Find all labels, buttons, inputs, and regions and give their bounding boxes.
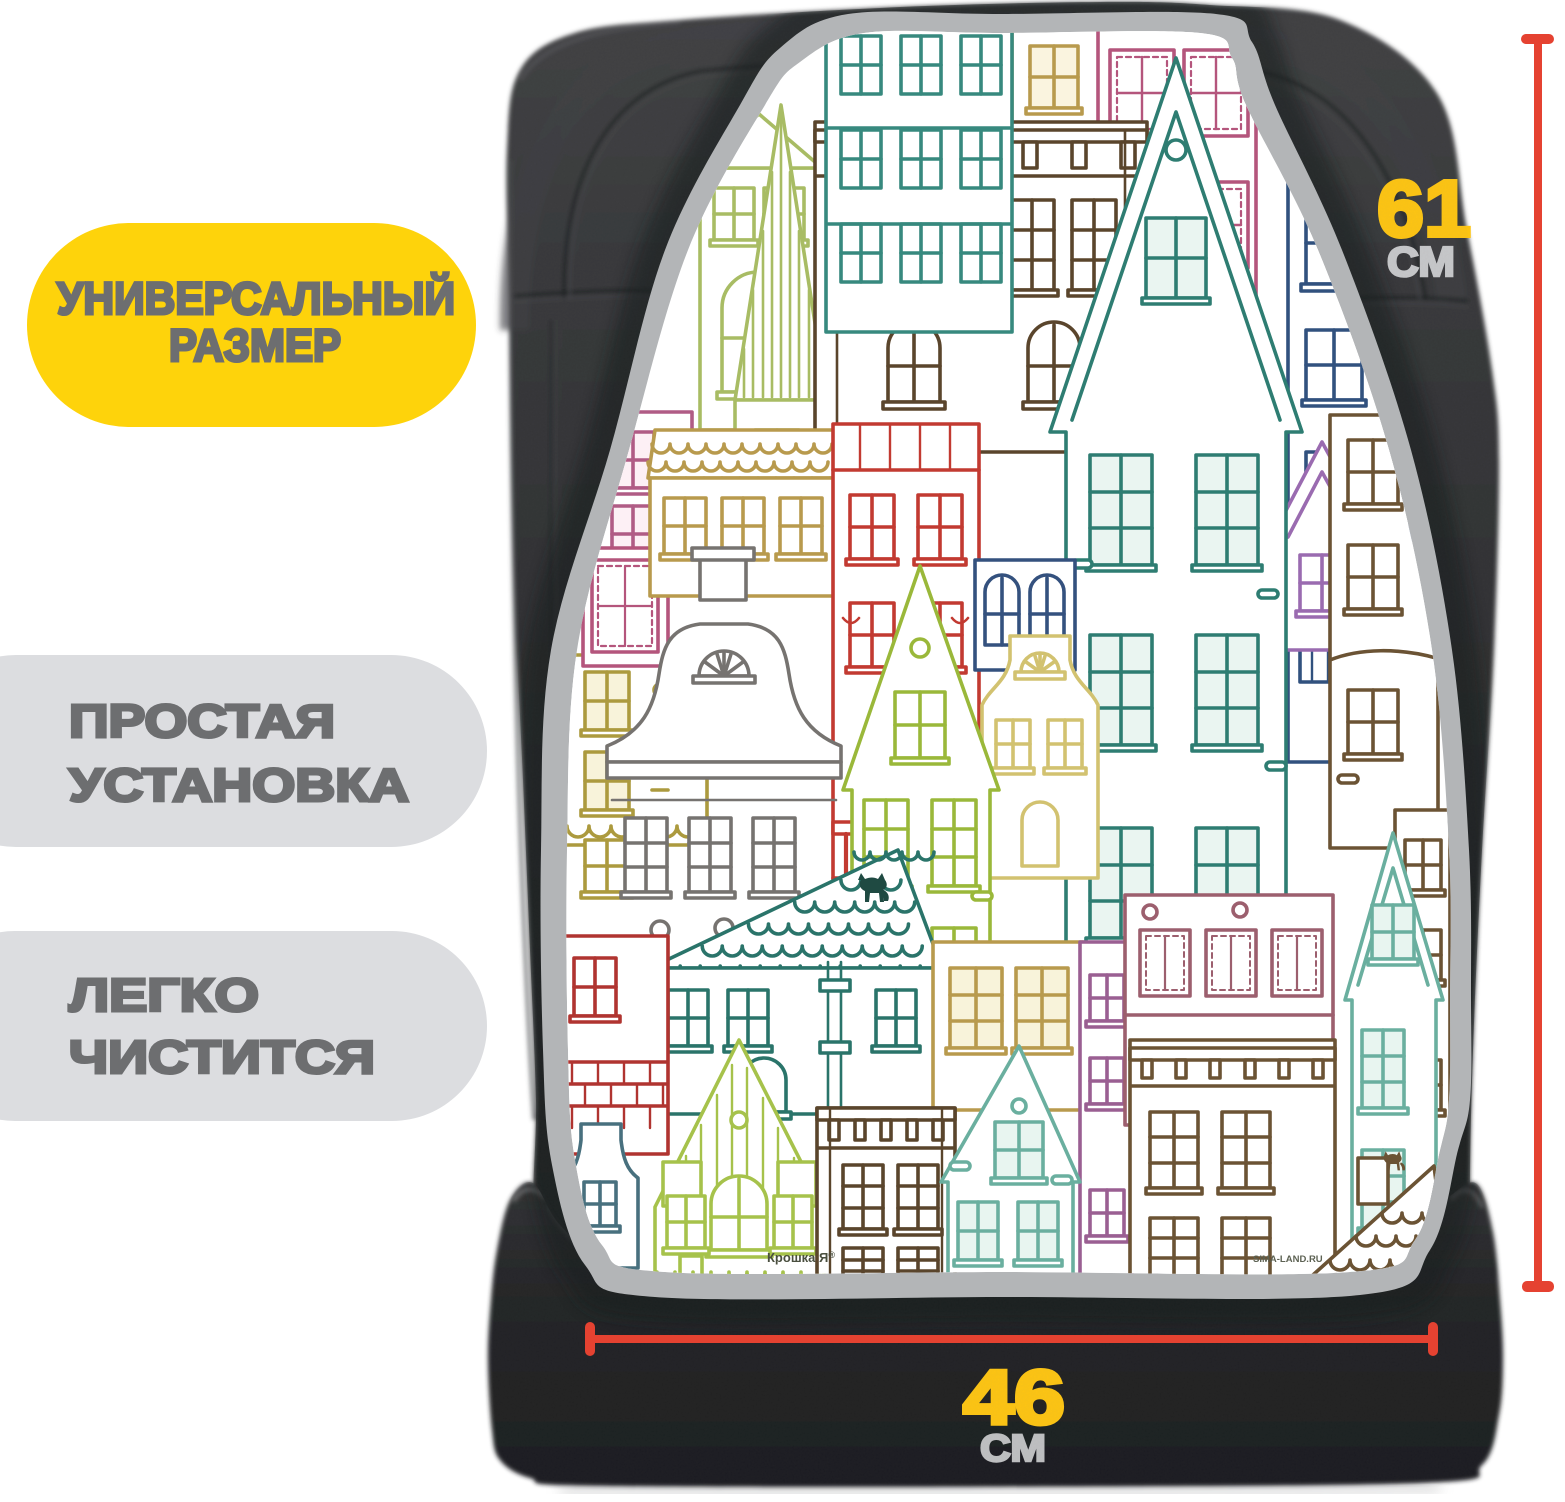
- svg-text:ПРОСТАЯ: ПРОСТАЯ: [69, 695, 335, 747]
- svg-text:УНИВЕРСАЛЬНЫЙ: УНИВЕРСАЛЬНЫЙ: [57, 273, 455, 324]
- svg-text:ЛЕГКО: ЛЕГКО: [69, 969, 259, 1021]
- svg-text:РАЗМЕР: РАЗМЕР: [169, 320, 341, 371]
- svg-text:УСТАНОВКА: УСТАНОВКА: [69, 759, 409, 811]
- svg-text:ЧИСТИТСЯ: ЧИСТИТСЯ: [69, 1031, 375, 1083]
